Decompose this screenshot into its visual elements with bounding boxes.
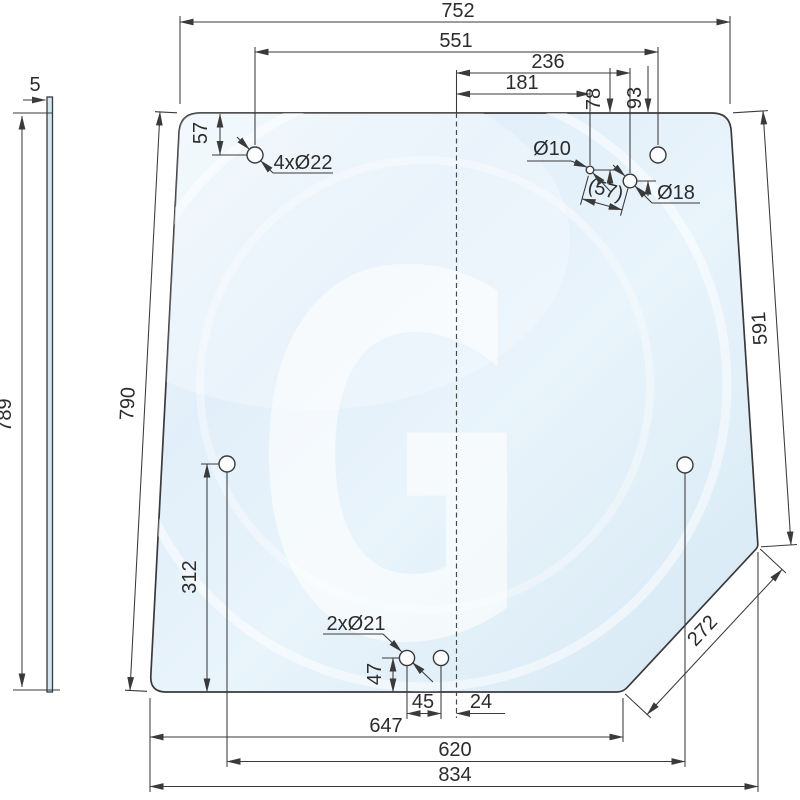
label-bottom-holes: 2xØ21 xyxy=(327,613,386,635)
dim-label-236: 236 xyxy=(531,51,564,73)
dim-label-312: 312 xyxy=(179,560,201,593)
hole-mid-left-d22 xyxy=(219,456,235,472)
dim-label-551: 551 xyxy=(439,30,472,52)
dim-label-57: 57 xyxy=(190,122,212,144)
label-large-hole: Ø18 xyxy=(657,182,695,204)
dimension-647: 647 xyxy=(150,698,623,792)
dim-label-47: 47 xyxy=(364,663,386,685)
technical-drawing-page: G 5 789 752 551 xyxy=(0,0,800,800)
hole-d10 xyxy=(586,166,594,174)
hole-bottom-left-d21 xyxy=(399,650,414,665)
label-corner-holes: 4xØ22 xyxy=(274,152,333,174)
dim-label-5: 5 xyxy=(29,74,40,96)
ext-lines-647 xyxy=(150,698,623,792)
dim-label-24: 24 xyxy=(470,691,492,713)
dim-label-790: 790 xyxy=(116,386,140,420)
dim-label-591: 591 xyxy=(748,311,772,346)
glass-panel-drawing: G 5 789 752 551 xyxy=(0,0,800,800)
dim-label-620: 620 xyxy=(438,739,471,761)
main-view: G xyxy=(50,70,758,753)
dim-label-647: 647 xyxy=(369,715,402,737)
hole-bottom-right-d21 xyxy=(433,650,448,665)
dim-label-834: 834 xyxy=(438,764,471,786)
watermark-letter: G xyxy=(252,171,532,753)
dim-label-45: 45 xyxy=(412,691,434,713)
side-view-strip xyxy=(47,97,53,692)
dim-label-789: 789 xyxy=(0,398,16,431)
dimension-24: 24 xyxy=(457,691,506,714)
dim-label-78: 78 xyxy=(583,88,605,110)
dimension-thickness-5: 5 xyxy=(23,74,46,100)
hole-top-right-d22 xyxy=(650,147,666,163)
dim-label-752: 752 xyxy=(441,0,474,22)
hole-mid-right-d22 xyxy=(677,457,693,473)
dim-label-93: 93 xyxy=(624,87,646,109)
side-view: 5 789 xyxy=(0,74,60,692)
dim-label-181: 181 xyxy=(505,72,538,94)
label-small-hole: Ø10 xyxy=(533,138,571,160)
